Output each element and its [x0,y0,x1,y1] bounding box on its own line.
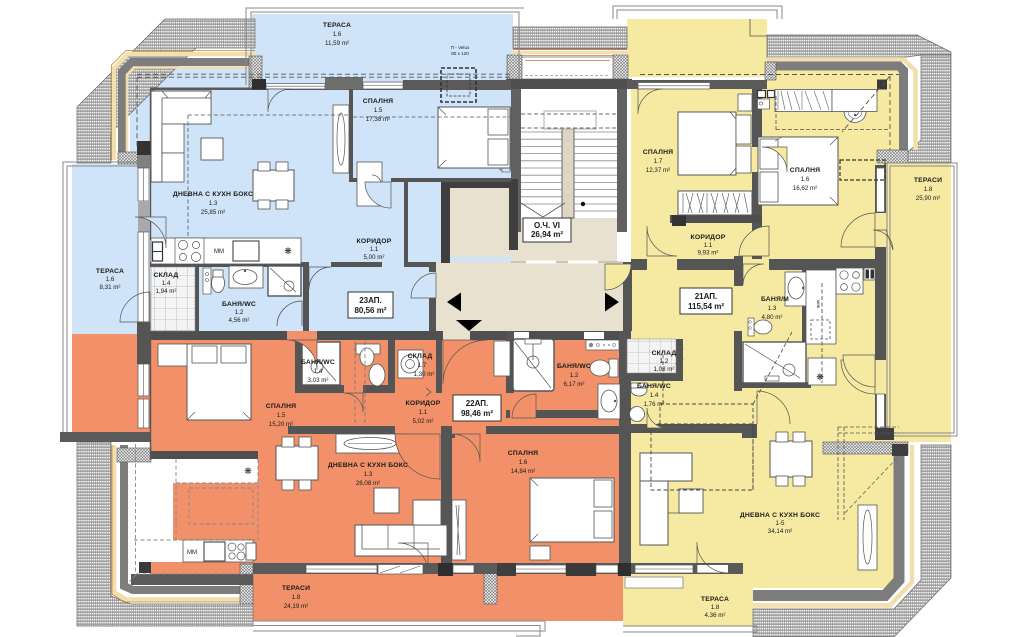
svg-text:1.5: 1.5 [374,107,383,114]
svg-text:1.6: 1.6 [801,176,810,183]
svg-text:1.8: 1.8 [292,594,301,601]
svg-text:О.Ч. VI: О.Ч. VI [534,221,560,230]
svg-text:12,37 m²: 12,37 m² [646,167,670,174]
svg-text:5,02 m²: 5,02 m² [413,418,434,425]
svg-text:БАНЯ/WC: БАНЯ/WC [301,359,335,366]
svg-text:16,62 m²: 16,62 m² [793,185,817,192]
svg-text:1,30 m²: 1,30 m² [414,371,435,378]
svg-text:1.8: 1.8 [711,604,720,611]
svg-text:24,19 m²: 24,19 m² [284,603,308,610]
svg-text:БАНЯ/WC: БАНЯ/WC [637,383,671,390]
svg-text:8,31 m²: 8,31 m² [100,284,121,291]
svg-text:1.2: 1.2 [235,309,244,316]
svg-text:ТЕРАСА: ТЕРАСА [96,268,124,275]
svg-text:25,90 m²: 25,90 m² [916,195,940,202]
svg-text:5,00 m²: 5,00 m² [364,254,385,261]
svg-text:21АП.: 21АП. [695,292,718,301]
svg-text:1.2: 1.2 [570,372,579,379]
svg-text:1.7: 1.7 [418,362,427,369]
svg-text:СПАЛНЯ: СПАЛНЯ [643,149,674,156]
svg-text:1.1: 1.1 [370,246,379,253]
svg-text:СПАЛНЯ: СПАЛНЯ [790,167,821,174]
svg-text:4,56 m²: 4,56 m² [229,317,250,324]
svg-text:мив: мив [816,300,821,309]
svg-text:КОРИДОР: КОРИДОР [406,400,441,407]
svg-text:❋: ❋ [284,246,292,256]
svg-text:4,80 m²: 4,80 m² [762,314,783,321]
svg-text:1.4: 1.4 [650,392,659,399]
svg-text:11,59 m²: 11,59 m² [325,40,349,47]
svg-text:ДНЕВНА С КУХН БОКС: ДНЕВНА С КУХН БОКС [740,512,820,519]
svg-text:❋: ❋ [244,466,252,476]
svg-text:34,14 m²: 34,14 m² [768,528,792,535]
svg-text:1.6: 1.6 [333,31,342,38]
svg-text:1.1: 1.1 [704,242,713,249]
svg-text:ТЕРАСИ: ТЕРАСИ [914,177,942,184]
svg-text:9,93 m²: 9,93 m² [698,250,719,257]
svg-text:22АП.: 22АП. [466,399,489,408]
svg-text:23АП.: 23АП. [359,296,382,305]
svg-text:6,17 m²: 6,17 m² [564,381,585,388]
svg-text:КОРИДОР: КОРИДОР [357,238,392,245]
svg-text:ТЕРАСА: ТЕРАСА [323,22,351,29]
svg-text:❋: ❋ [816,372,824,382]
svg-text:ТЕРАСА: ТЕРАСА [701,596,729,603]
svg-text:СПАЛНЯ: СПАЛНЯ [363,98,394,105]
svg-text:4,36 m²: 4,36 m² [705,612,726,619]
svg-text:MM: MM [187,550,197,556]
svg-text:1.4: 1.4 [314,368,323,375]
svg-text:П - Velux: П - Velux [451,45,470,50]
svg-text:СКЛАД: СКЛАД [408,353,433,360]
svg-text:1.2: 1.2 [660,358,669,365]
svg-text:26,94 m²: 26,94 m² [531,230,563,239]
svg-text:КОРИДОР: КОРИДОР [691,234,726,241]
svg-text:80 х 120: 80 х 120 [451,51,469,56]
svg-text:1,08 m²: 1,08 m² [654,366,675,373]
svg-text:1.6: 1.6 [106,276,115,283]
svg-text:1.1: 1.1 [419,409,428,416]
svg-text:ДНЕВНА С КУХН БОКС: ДНЕВНА С КУХН БОКС [173,191,253,198]
svg-text:1.4: 1.4 [162,280,171,287]
svg-text:1-5: 1-5 [776,520,786,527]
svg-text:СПАЛНЯ: СПАЛНЯ [508,450,539,457]
svg-text:17,38 m²: 17,38 m² [366,116,390,123]
svg-text:1.5: 1.5 [277,412,286,419]
svg-text:25,85 m²: 25,85 m² [201,209,225,216]
svg-text:1.8: 1.8 [924,186,933,193]
svg-text:26,08 m²: 26,08 m² [356,480,380,487]
svg-text:115,54 m²: 115,54 m² [688,302,724,311]
svg-text:ДНЕВНА С КУХН БОКС: ДНЕВНА С КУХН БОКС [328,462,408,469]
svg-text:80,56 m²: 80,56 m² [354,306,386,315]
svg-text:СКЛАД: СКЛАД [154,272,179,279]
svg-text:15,20 m²: 15,20 m² [269,421,293,428]
svg-text:1.3: 1.3 [209,200,218,207]
svg-text:98,46 m²: 98,46 m² [461,409,493,418]
svg-text:1.3: 1.3 [768,305,777,312]
svg-text:БАНЯ/WC: БАНЯ/WC [222,301,256,308]
svg-text:1.3: 1.3 [364,471,373,478]
svg-text:ТЕРАСИ: ТЕРАСИ [282,585,310,592]
svg-text:БАНЯ/М: БАНЯ/М [761,296,789,303]
svg-text:1,76 m²: 1,76 m² [644,401,665,408]
svg-text:1.7: 1.7 [654,158,663,165]
svg-text:СПАЛНЯ: СПАЛНЯ [266,403,297,410]
svg-text:3,03 m²: 3,03 m² [308,377,329,384]
svg-text:14,84 m²: 14,84 m² [511,468,535,475]
svg-text:1,94 m²: 1,94 m² [156,288,177,295]
svg-text:СКЛАД: СКЛАД [652,350,677,357]
svg-text:БАНЯ/WC: БАНЯ/WC [557,363,591,370]
svg-text:1.6: 1.6 [519,459,528,466]
svg-text:MM: MM [214,249,224,255]
